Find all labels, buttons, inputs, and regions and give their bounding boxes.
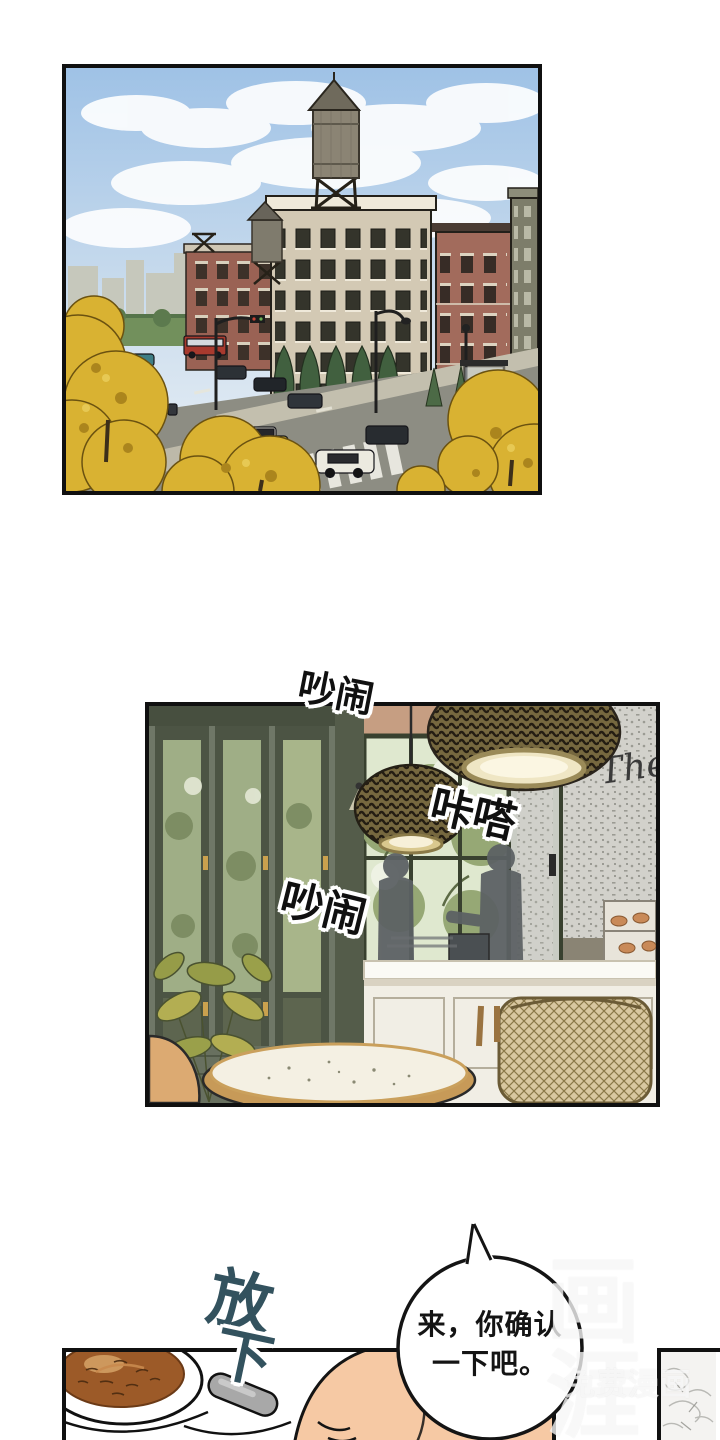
comic-page: The xyxy=(0,0,720,1440)
round-table xyxy=(203,1044,475,1103)
watermark-tagline: 免费漫画 xyxy=(564,1370,692,1401)
rattan-chair xyxy=(499,998,651,1103)
watermark-logo: 画涯 xyxy=(546,1256,720,1440)
sfx-put-down-char2: 下 xyxy=(209,1323,284,1393)
sfx-put-down: 放 下 xyxy=(190,1265,278,1398)
panel-city-street xyxy=(62,64,542,495)
cafe-interior-illustration: The xyxy=(149,706,656,1103)
city-street-illustration xyxy=(66,68,538,491)
panel-cafe-interior: The xyxy=(145,702,660,1107)
